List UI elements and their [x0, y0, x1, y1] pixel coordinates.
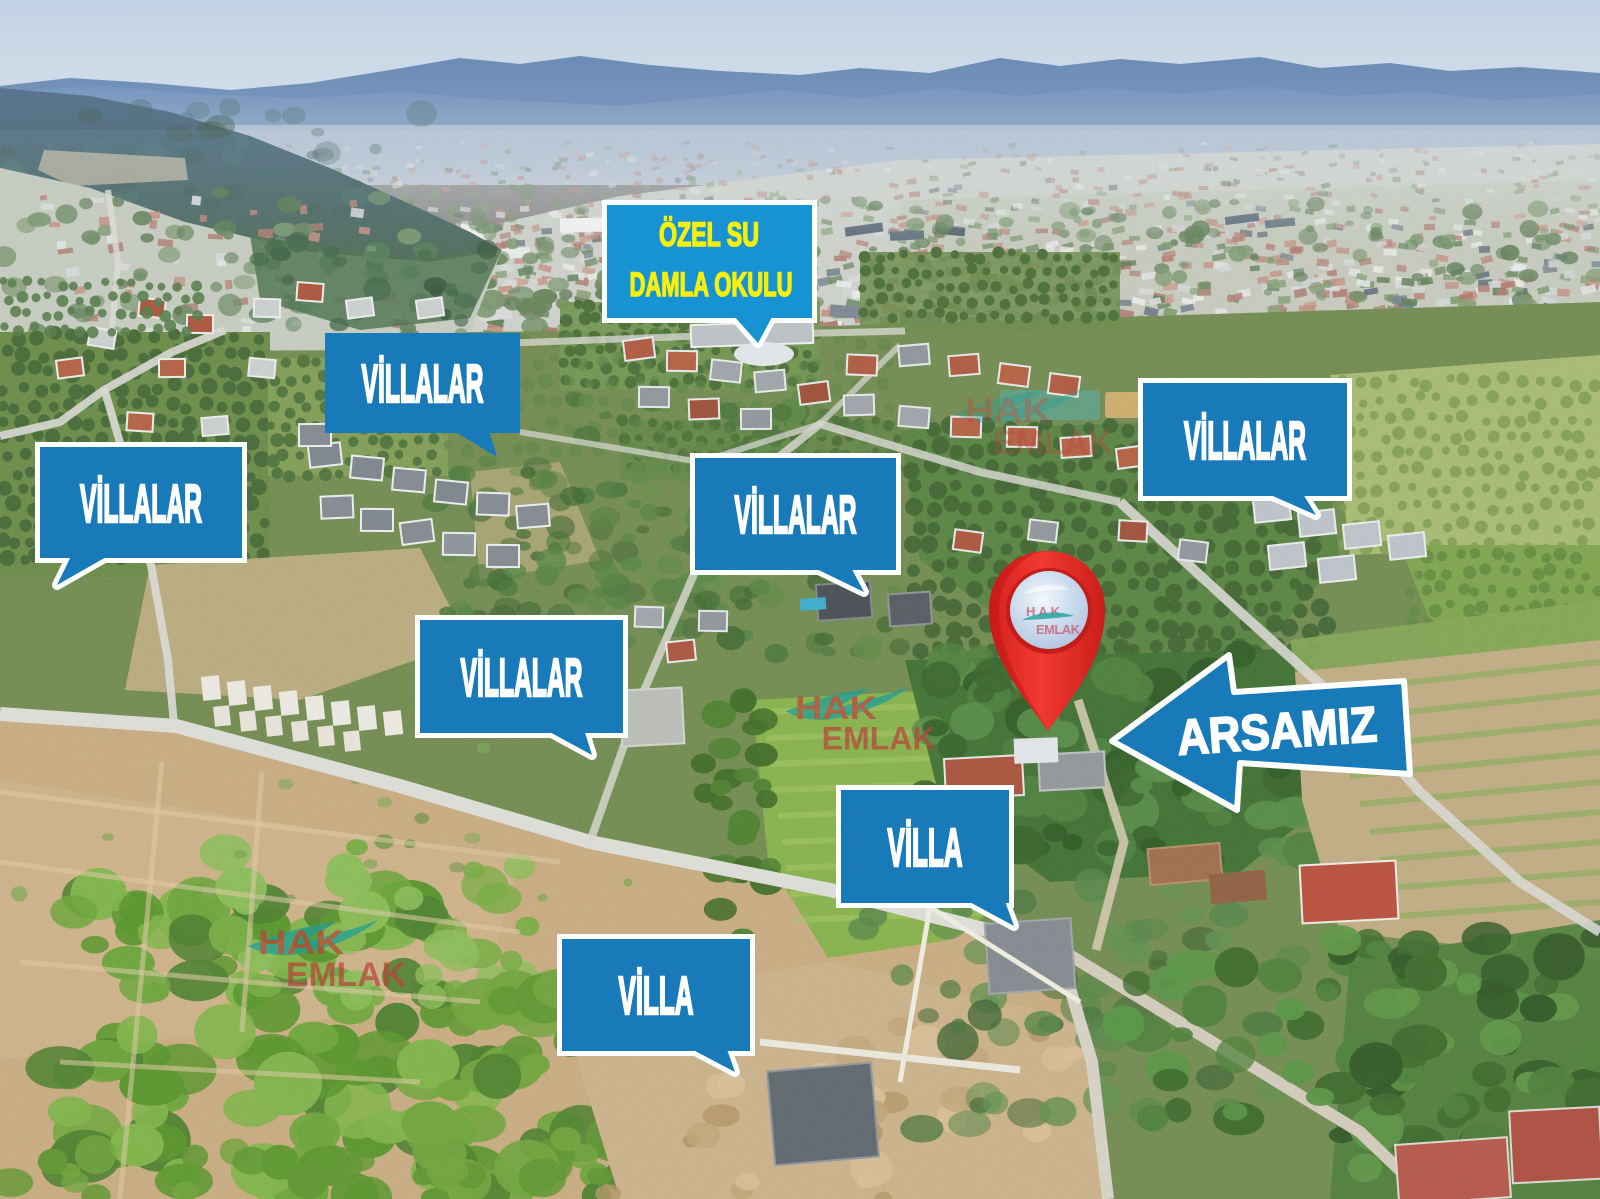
svg-text:DAMLA OKULU: DAMLA OKULU	[630, 266, 793, 304]
svg-text:VİLLALAR: VİLLALAR	[80, 474, 202, 534]
svg-text:VİLLA: VİLLA	[888, 818, 963, 878]
svg-text:VİLLALAR: VİLLALAR	[362, 354, 484, 414]
svg-text:ÖZEL SU: ÖZEL SU	[659, 216, 759, 254]
svg-text:EMLAK: EMLAK	[822, 720, 937, 756]
svg-text:EMLAK: EMLAK	[993, 424, 1113, 462]
svg-text:VİLLALAR: VİLLALAR	[735, 485, 857, 545]
svg-text:VİLLALAR: VİLLALAR	[1184, 411, 1306, 471]
svg-text:VİLLALAR: VİLLALAR	[461, 648, 583, 708]
svg-text:VİLLA: VİLLA	[619, 966, 694, 1026]
svg-text:EMLAK: EMLAK	[1036, 622, 1081, 637]
svg-text:EMLAK: EMLAK	[286, 956, 406, 994]
